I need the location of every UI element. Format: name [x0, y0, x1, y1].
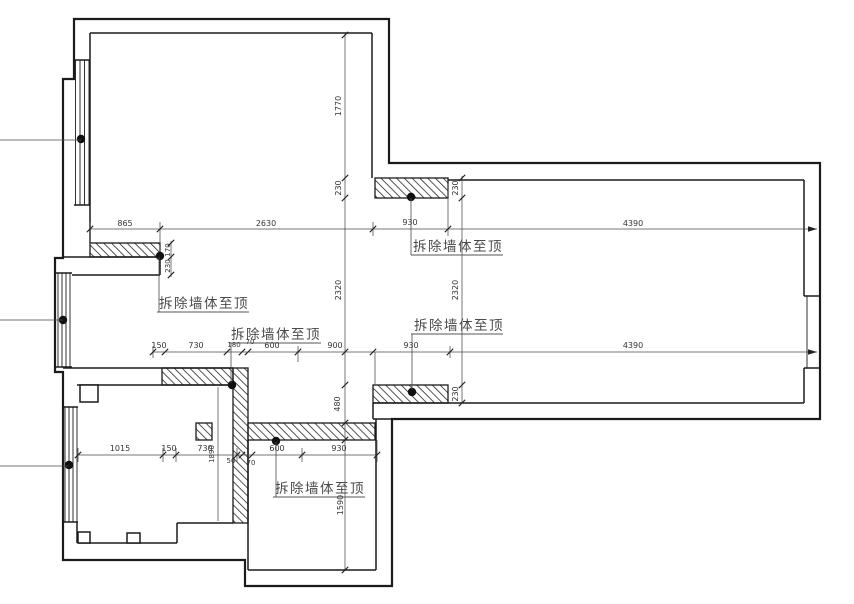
dim-mid-930: 930	[403, 341, 418, 350]
dim-vwall-170: 170	[164, 243, 172, 256]
dim-bottom-150: 150	[161, 444, 176, 453]
dot-window-lower	[65, 461, 73, 469]
window-left-upper	[74, 60, 90, 205]
dim-arrow-mid-right	[808, 349, 817, 355]
dim-bottom-50: 50	[227, 457, 236, 465]
dim-mid-150: 150	[151, 341, 166, 350]
dim-top-930: 930	[402, 218, 417, 227]
dim-vleft-230: 230	[334, 180, 343, 195]
dim-vleft-1770: 1770	[334, 96, 343, 116]
dim-vright-230a: 230	[451, 180, 460, 195]
dim-bottom-930: 930	[331, 444, 346, 453]
dim-vleft-2320: 2320	[334, 280, 343, 300]
hatch-wall-vertical-column	[233, 368, 248, 523]
dim-mid-4390: 4390	[623, 341, 643, 350]
door-post-right	[127, 533, 140, 543]
dim-arrow-top-right	[808, 226, 817, 232]
demolish-hatched-walls	[90, 178, 448, 523]
dot-hatch-upper-left	[156, 252, 164, 260]
dim-bottom-1015: 1015	[110, 444, 130, 453]
dim-bottom-600: 600	[269, 444, 284, 453]
dim-top-865: 865	[117, 219, 132, 228]
demolition-floor-plan: 865 2630 930 4390 150 730 180 70 600 900…	[0, 0, 854, 604]
floor-plan-canvas: 865 2630 930 4390 150 730 180 70 600 900…	[0, 0, 854, 604]
dim-vleft-480: 480	[333, 396, 342, 411]
wall-pilaster	[80, 385, 98, 402]
demolish-label-upper-left: 拆除墙体至顶	[159, 296, 249, 312]
dim-top-2630: 2630	[256, 219, 276, 228]
hatch-wall-upper-left	[90, 243, 160, 257]
demolish-label-mid-left: 拆除墙体至顶	[231, 327, 321, 343]
dim-mid-730: 730	[188, 341, 203, 350]
demolish-label-mid-right: 拆除墙体至顶	[414, 318, 504, 334]
dim-vwall-230: 230	[164, 259, 172, 272]
dim-vright-2320: 2320	[451, 280, 460, 300]
dot-window-upper	[77, 135, 85, 143]
door-post-left	[78, 532, 90, 543]
dim-vright-230b: 230	[451, 386, 460, 401]
hatch-wall-stub	[196, 423, 212, 440]
demolish-label-bottom: 拆除墙体至顶	[275, 481, 365, 497]
dim-bottom-1890: 1890	[208, 445, 216, 463]
hatch-wall-mid-left	[162, 368, 233, 385]
demolish-label-top: 拆除墙体至顶	[413, 239, 503, 255]
dim-bottom-70: 70	[247, 459, 256, 467]
dim-vleft-1590: 1590	[336, 495, 345, 515]
dot-hatch-mid-left	[228, 381, 236, 389]
dim-top-4390: 4390	[623, 219, 643, 228]
dim-mid-900: 900	[327, 341, 342, 350]
hatch-wall-bottom-middle	[248, 423, 375, 440]
